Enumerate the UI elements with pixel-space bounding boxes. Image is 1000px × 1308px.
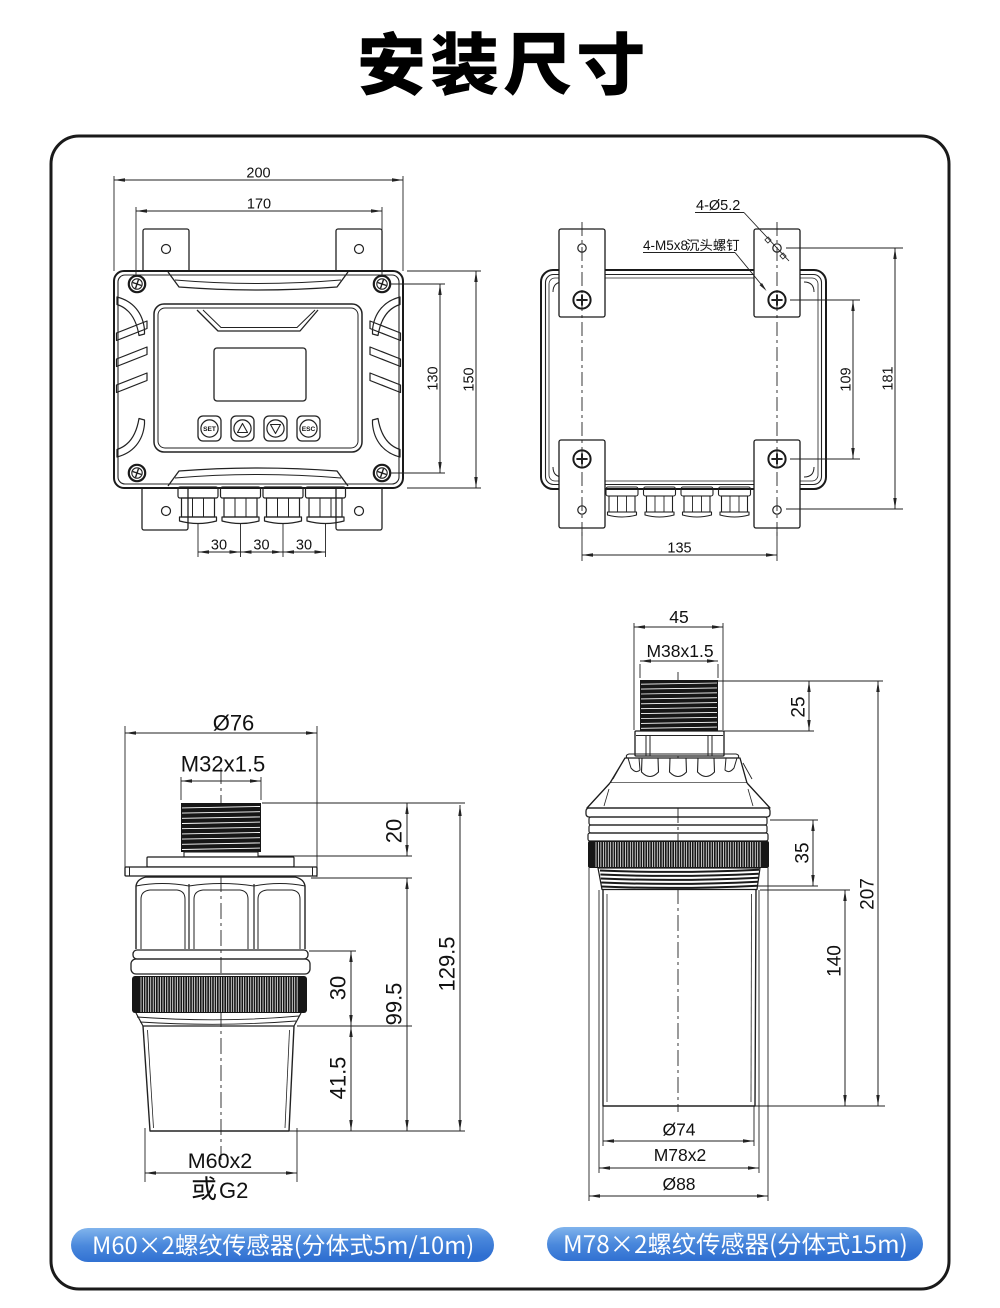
svg-text:181: 181	[881, 366, 897, 390]
svg-text:30: 30	[253, 538, 269, 554]
svg-text:41.5: 41.5	[326, 1057, 351, 1100]
svg-text:140: 140	[825, 945, 846, 977]
svg-text:30: 30	[326, 976, 351, 1000]
svg-text:G2: G2	[219, 1178, 248, 1203]
svg-text:35: 35	[793, 842, 814, 863]
svg-text:Ø74: Ø74	[662, 1120, 695, 1140]
svg-text:M38x1.5: M38x1.5	[646, 641, 713, 661]
svg-text:M78x2: M78x2	[654, 1145, 707, 1165]
svg-text:4-M5x8: 4-M5x8	[643, 238, 688, 253]
svg-text:30: 30	[296, 538, 312, 554]
svg-text:25: 25	[789, 696, 810, 717]
svg-text:Ø88: Ø88	[662, 1174, 695, 1194]
svg-text:170: 170	[247, 197, 271, 213]
svg-text:SET: SET	[203, 426, 216, 433]
svg-text:ESC: ESC	[302, 426, 316, 433]
svg-text:207: 207	[858, 878, 879, 910]
svg-text:200: 200	[246, 166, 270, 182]
svg-text:130: 130	[426, 366, 442, 390]
svg-text:M32x1.5: M32x1.5	[181, 752, 265, 777]
svg-text:135: 135	[667, 541, 691, 557]
svg-text:99.5: 99.5	[382, 983, 407, 1026]
svg-text:Ø76: Ø76	[213, 711, 255, 736]
svg-text:129.5: 129.5	[435, 936, 460, 991]
svg-text:M60x2: M60x2	[188, 1149, 253, 1173]
svg-text:109: 109	[839, 367, 855, 391]
svg-text:4-Ø5.2: 4-Ø5.2	[696, 198, 740, 214]
svg-text:45: 45	[669, 607, 688, 627]
svg-text:20: 20	[382, 819, 407, 843]
svg-text:150: 150	[462, 367, 478, 391]
svg-text:30: 30	[211, 538, 227, 554]
